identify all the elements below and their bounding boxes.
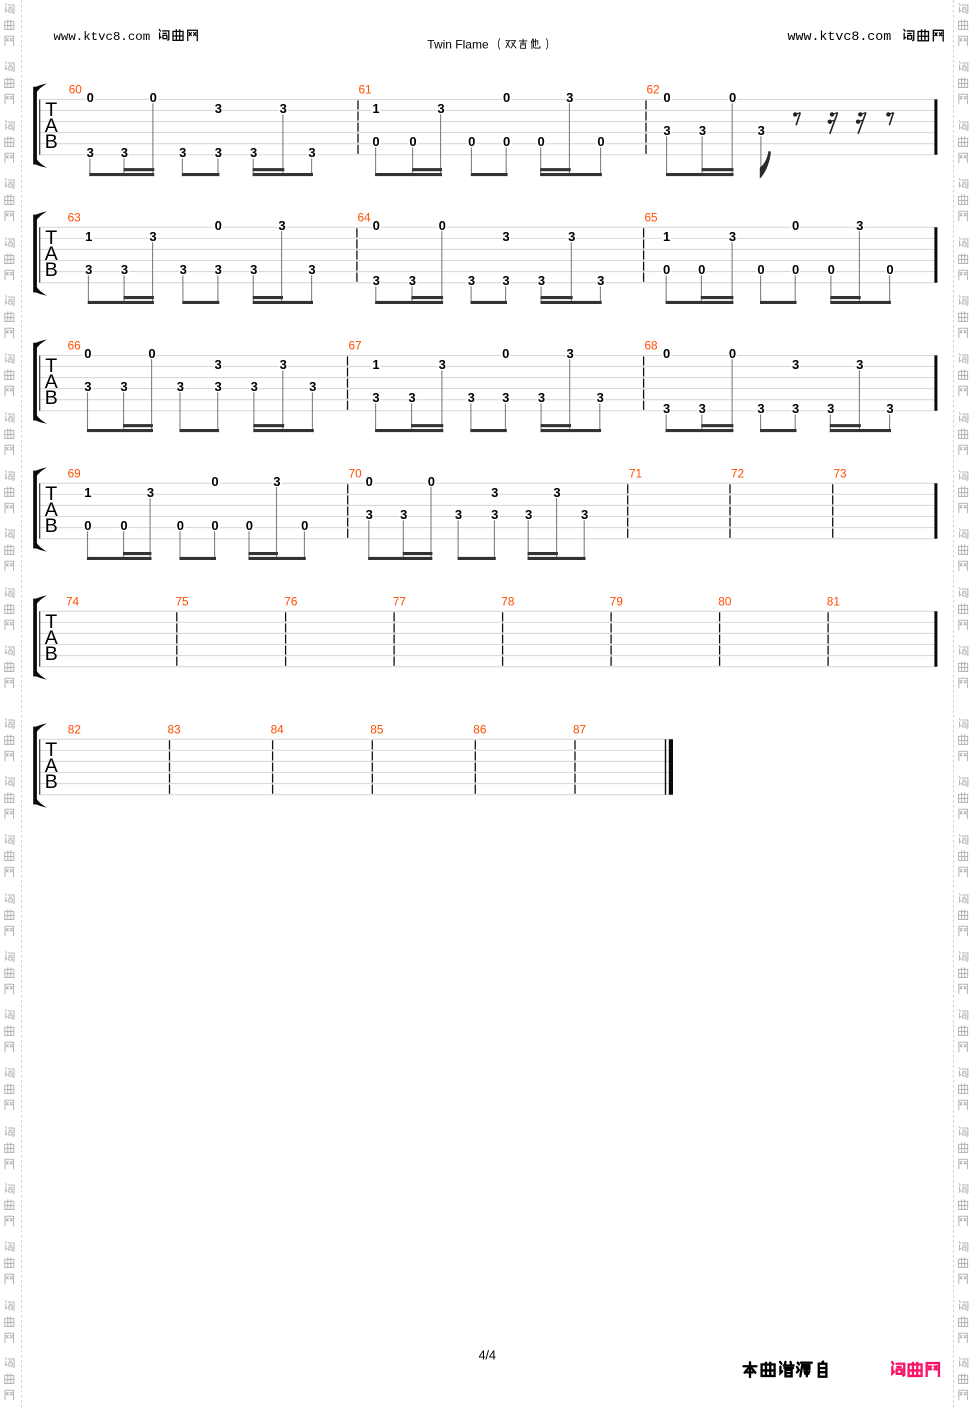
svg-text:3: 3: [699, 401, 706, 416]
svg-text:0: 0: [120, 518, 127, 533]
svg-text:0: 0: [503, 134, 510, 149]
svg-text:3: 3: [179, 145, 186, 160]
svg-text:3: 3: [409, 273, 416, 288]
svg-text:3: 3: [566, 90, 573, 105]
svg-text:3: 3: [597, 390, 604, 405]
svg-text:3: 3: [278, 218, 285, 233]
svg-text:3: 3: [568, 229, 575, 244]
svg-text:0: 0: [372, 134, 379, 149]
svg-text:0: 0: [757, 262, 764, 277]
svg-text:1: 1: [663, 229, 670, 244]
svg-text:67: 67: [349, 338, 362, 352]
svg-text:3: 3: [280, 101, 287, 116]
svg-text:0: 0: [597, 134, 604, 149]
svg-text:3: 3: [149, 229, 156, 244]
svg-text:1: 1: [372, 101, 379, 116]
svg-text:82: 82: [68, 722, 81, 736]
svg-text:0: 0: [211, 518, 218, 533]
svg-text:B: B: [45, 515, 58, 537]
svg-text:0: 0: [373, 218, 380, 233]
svg-text:0: 0: [301, 518, 308, 533]
svg-text:3: 3: [538, 390, 545, 405]
svg-text:3: 3: [597, 273, 604, 288]
svg-text:1: 1: [84, 485, 91, 500]
svg-text:3: 3: [827, 401, 834, 416]
svg-text:Twin Flame: Twin Flame: [427, 37, 489, 51]
svg-text:3: 3: [581, 507, 588, 522]
svg-text:3: 3: [856, 357, 863, 372]
svg-text:3: 3: [525, 507, 532, 522]
svg-text:80: 80: [718, 594, 732, 608]
svg-text:3: 3: [437, 101, 444, 116]
svg-text:0: 0: [698, 262, 705, 277]
svg-text:0: 0: [84, 518, 91, 533]
svg-text:0: 0: [84, 346, 91, 361]
svg-text:62: 62: [647, 82, 660, 96]
svg-text:3: 3: [468, 273, 475, 288]
svg-text:0: 0: [729, 90, 736, 105]
svg-text:3: 3: [87, 145, 94, 160]
svg-text:3: 3: [468, 390, 475, 405]
svg-text:0: 0: [215, 218, 222, 233]
svg-text:64: 64: [358, 210, 372, 224]
svg-text:3: 3: [215, 262, 222, 277]
svg-text:69: 69: [68, 466, 81, 480]
svg-text:3: 3: [439, 357, 446, 372]
svg-text:73: 73: [834, 466, 848, 480]
svg-text:0: 0: [409, 134, 416, 149]
svg-text:0: 0: [87, 90, 94, 105]
svg-text:3: 3: [792, 357, 799, 372]
svg-text:3: 3: [792, 401, 799, 416]
svg-text:3: 3: [663, 401, 670, 416]
svg-text:3: 3: [491, 507, 498, 522]
svg-text:63: 63: [68, 210, 82, 224]
svg-text:0: 0: [663, 346, 670, 361]
svg-text:86: 86: [473, 722, 487, 736]
svg-text:77: 77: [393, 594, 406, 608]
svg-text:72: 72: [731, 466, 744, 480]
svg-text:85: 85: [370, 722, 384, 736]
svg-text:71: 71: [629, 466, 642, 480]
svg-text:0: 0: [886, 262, 893, 277]
svg-text:0: 0: [246, 518, 253, 533]
svg-text:78: 78: [501, 594, 515, 608]
svg-text:0: 0: [792, 218, 799, 233]
svg-text:3: 3: [147, 485, 154, 500]
svg-text:3: 3: [366, 507, 373, 522]
svg-text:3: 3: [502, 390, 509, 405]
svg-text:0: 0: [828, 262, 835, 277]
svg-text:87: 87: [573, 722, 586, 736]
svg-text:3: 3: [455, 507, 462, 522]
svg-text:3: 3: [308, 262, 315, 277]
svg-text:3: 3: [214, 357, 221, 372]
svg-text:4/4: 4/4: [479, 1349, 496, 1363]
svg-text:3: 3: [120, 379, 127, 394]
svg-text:3: 3: [663, 123, 670, 138]
svg-text:83: 83: [168, 722, 182, 736]
svg-text:0: 0: [150, 90, 157, 105]
svg-text:3: 3: [856, 218, 863, 233]
svg-text:66: 66: [68, 338, 82, 352]
svg-text:3: 3: [491, 485, 498, 500]
svg-text:3: 3: [502, 229, 509, 244]
svg-text:75: 75: [176, 594, 190, 608]
svg-text:0: 0: [729, 346, 736, 361]
svg-text:www.ktvc8.com: www.ktvc8.com: [788, 29, 892, 44]
svg-text:3: 3: [538, 273, 545, 288]
svg-text:3: 3: [215, 101, 222, 116]
svg-text:0: 0: [537, 134, 544, 149]
svg-text:3: 3: [85, 262, 92, 277]
svg-text:0: 0: [366, 474, 373, 489]
svg-text:3: 3: [180, 262, 187, 277]
svg-text:79: 79: [610, 594, 623, 608]
svg-text:3: 3: [309, 379, 316, 394]
svg-text:3: 3: [250, 145, 257, 160]
svg-text:81: 81: [827, 594, 840, 608]
svg-text:0: 0: [177, 518, 184, 533]
svg-text:3: 3: [699, 123, 706, 138]
svg-text:0: 0: [211, 474, 218, 489]
svg-text:1: 1: [85, 229, 92, 244]
svg-text:3: 3: [886, 401, 893, 416]
svg-text:3: 3: [758, 123, 765, 138]
svg-text:0: 0: [468, 134, 475, 149]
svg-text:3: 3: [553, 485, 560, 500]
svg-text:0: 0: [663, 262, 670, 277]
svg-text:61: 61: [359, 82, 372, 96]
svg-text:70: 70: [349, 466, 363, 480]
svg-text:0: 0: [502, 346, 509, 361]
svg-text:74: 74: [66, 594, 80, 608]
svg-text:0: 0: [663, 90, 670, 105]
svg-text:3: 3: [251, 379, 258, 394]
svg-text:B: B: [45, 131, 58, 153]
svg-text:0: 0: [503, 90, 510, 105]
svg-text:3: 3: [273, 474, 280, 489]
svg-text:3: 3: [502, 273, 509, 288]
svg-text:3: 3: [757, 401, 764, 416]
svg-text:3: 3: [250, 262, 257, 277]
svg-text:3: 3: [121, 145, 128, 160]
svg-text:3: 3: [177, 379, 184, 394]
svg-text:0: 0: [148, 346, 155, 361]
svg-text:0: 0: [792, 262, 799, 277]
svg-text:3: 3: [308, 145, 315, 160]
svg-text:84: 84: [271, 722, 285, 736]
svg-text:60: 60: [69, 82, 83, 96]
svg-text:www.ktvc8.com: www.ktvc8.com: [54, 30, 151, 44]
svg-text:3: 3: [373, 273, 380, 288]
svg-text:65: 65: [645, 210, 659, 224]
svg-text:B: B: [45, 643, 58, 665]
svg-text:3: 3: [280, 357, 287, 372]
svg-text:3: 3: [121, 262, 128, 277]
svg-text:0: 0: [428, 474, 435, 489]
svg-text:3: 3: [214, 379, 221, 394]
svg-text:3: 3: [215, 145, 222, 160]
svg-text:3: 3: [729, 229, 736, 244]
svg-text:B: B: [45, 259, 58, 281]
svg-text:3: 3: [566, 346, 573, 361]
svg-text:3: 3: [408, 390, 415, 405]
svg-text:3: 3: [372, 390, 379, 405]
svg-text:1: 1: [372, 357, 379, 372]
svg-text:3: 3: [84, 379, 91, 394]
svg-text:68: 68: [645, 338, 659, 352]
svg-text:76: 76: [284, 594, 298, 608]
svg-text:B: B: [45, 771, 58, 793]
svg-text:3: 3: [400, 507, 407, 522]
svg-text:B: B: [45, 387, 58, 409]
svg-text:0: 0: [439, 218, 446, 233]
